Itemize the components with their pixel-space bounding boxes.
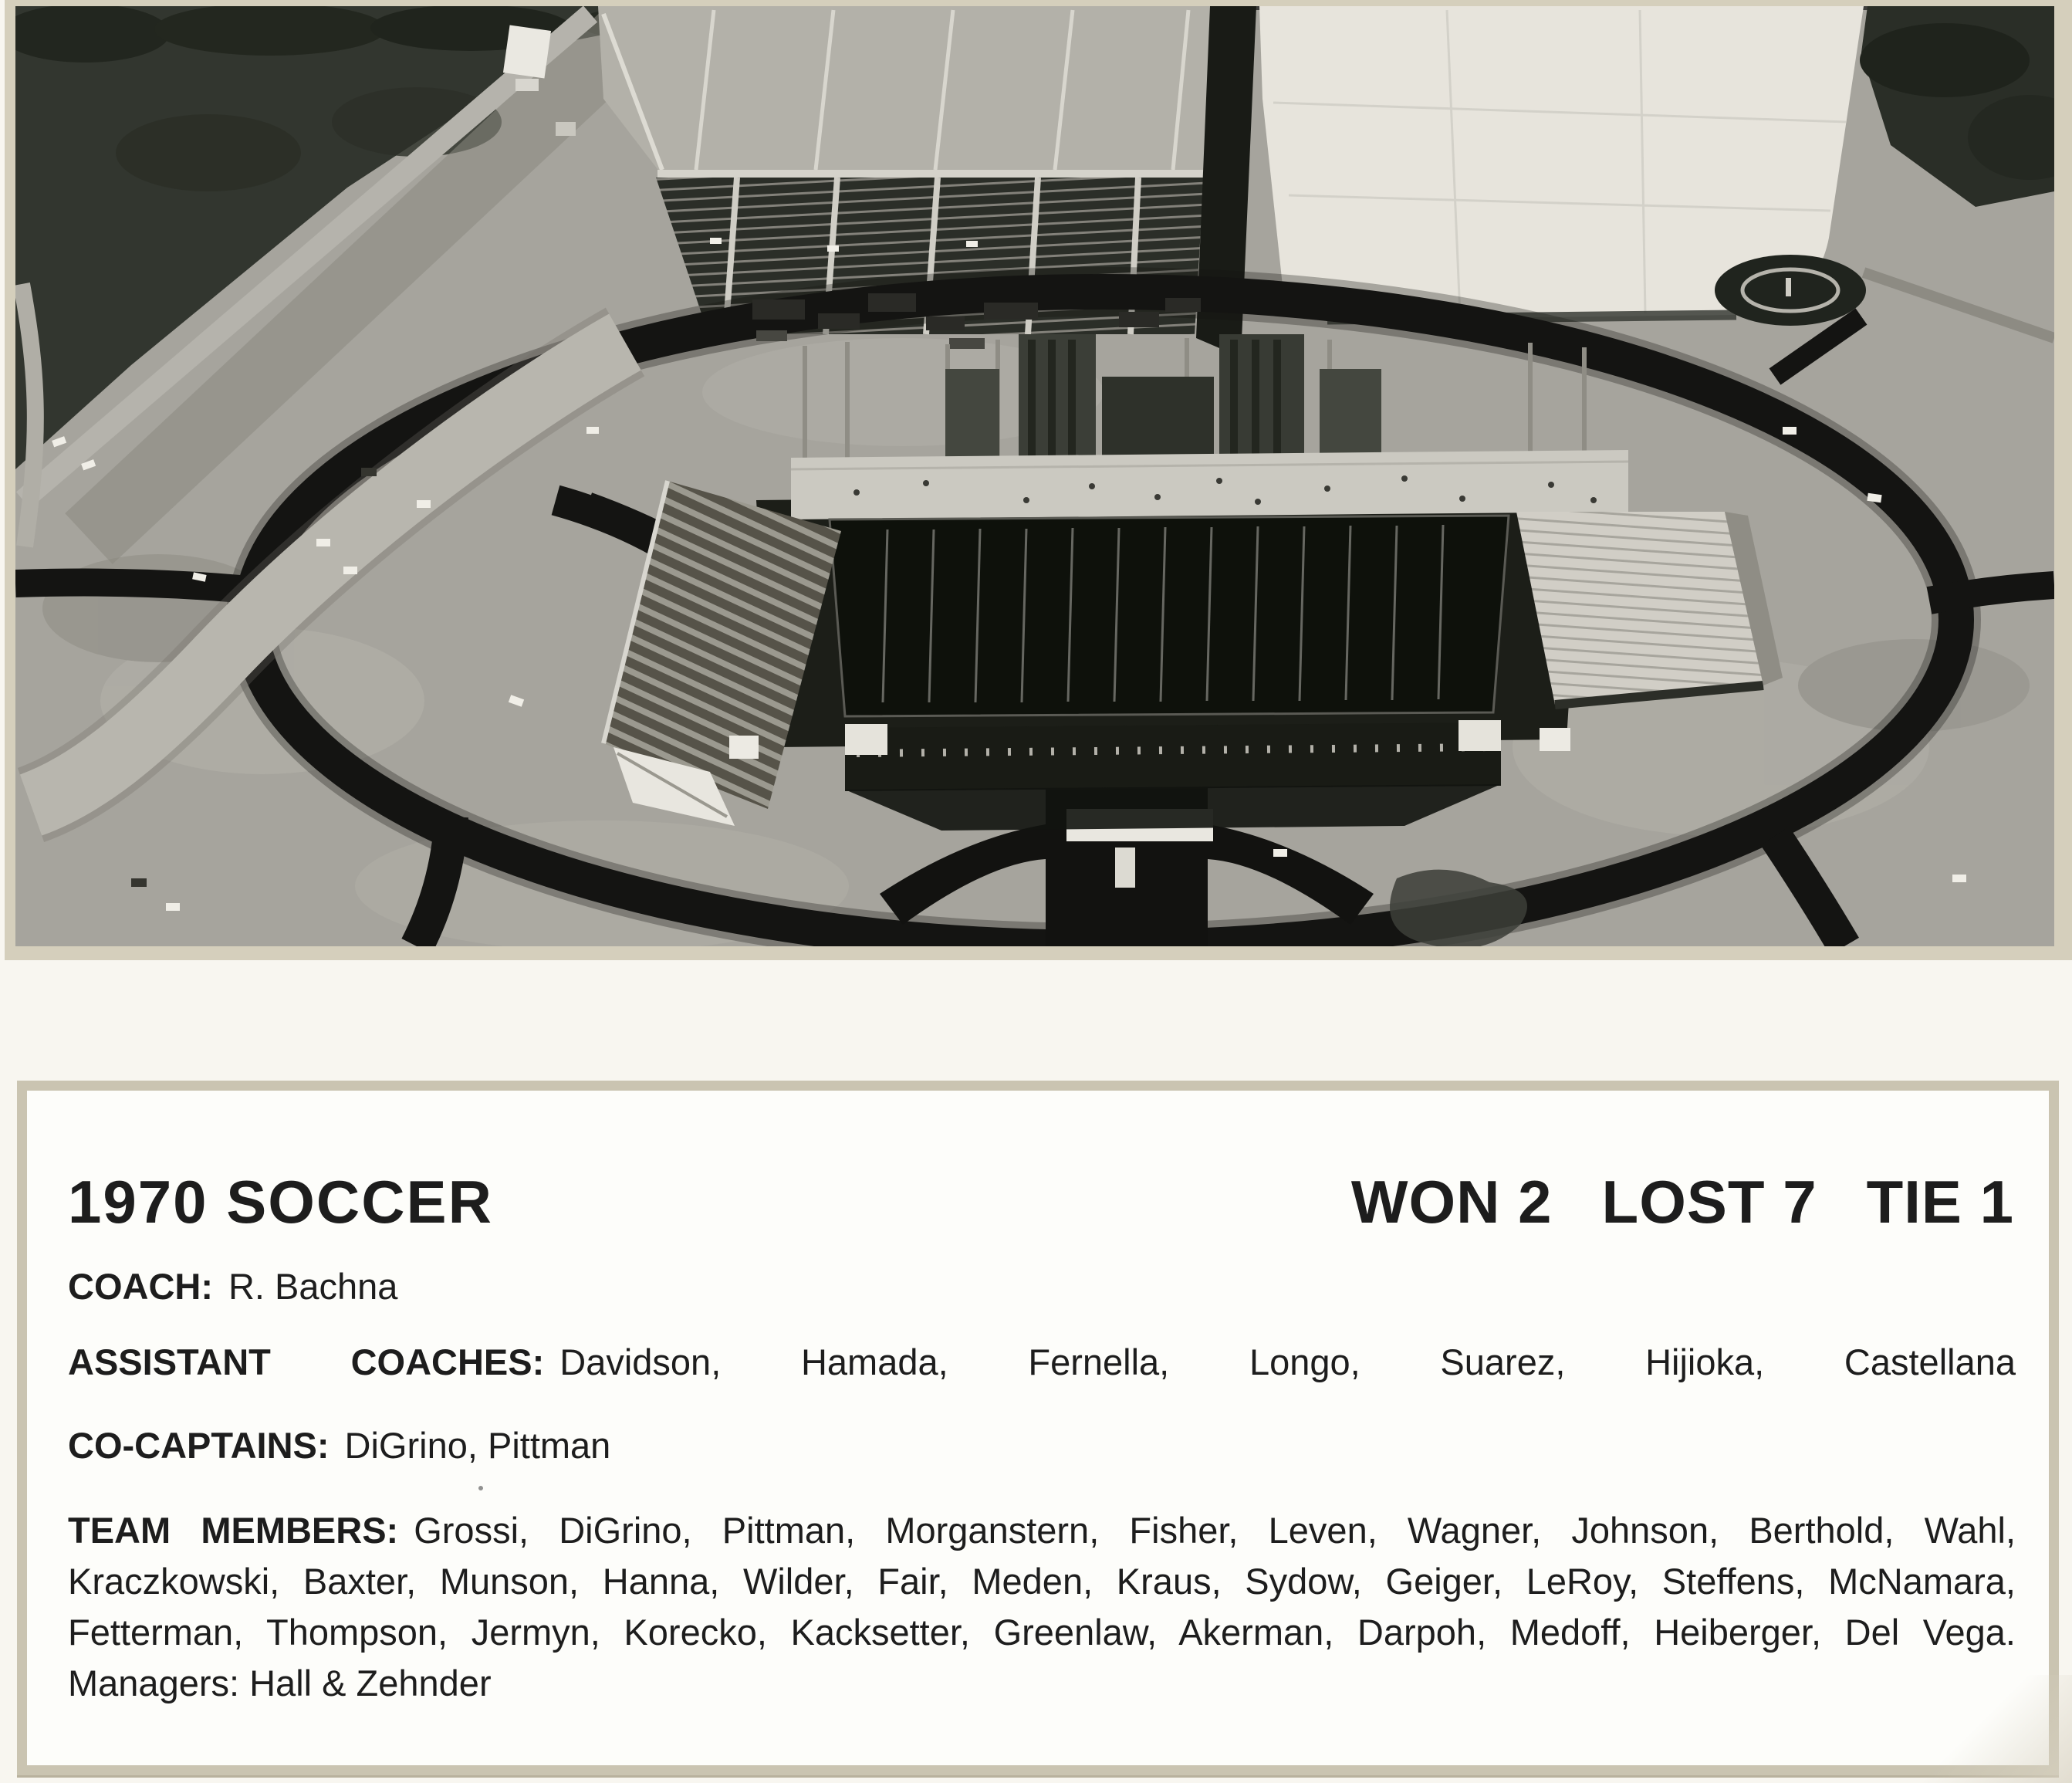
photo-mat — [5, 0, 2072, 960]
season-title: 1970 SOCCER — [68, 1167, 493, 1237]
record-lost: LOST 7 — [1602, 1167, 1817, 1237]
season-record: WON 2 LOST 7 TIE 1 — [1351, 1167, 2014, 1237]
assistant-coaches-label: ASSISTANT COACHES: — [68, 1341, 544, 1382]
ticket-booth-east — [1540, 728, 1570, 751]
east-grandstand — [1516, 512, 1783, 705]
scan-speck — [478, 1486, 483, 1490]
aerial-photo — [15, 6, 2054, 946]
team-members-label: TEAM MEMBERS: — [68, 1510, 398, 1551]
assistant-coaches-line: ASSISTANT COACHES:Davidson, Hamada, Fern… — [68, 1340, 2016, 1385]
parking-lot-upper — [598, 6, 1215, 172]
page-corner-shadow — [1840, 1675, 2072, 1783]
coach-label: COACH: — [68, 1266, 213, 1307]
record-tie: TIE 1 — [1867, 1167, 2014, 1237]
assistant-coaches-value: Davidson, Hamada, Fernella, Longo, Suare… — [559, 1341, 2016, 1382]
ticket-booth-west — [729, 736, 759, 759]
co-captains-label: CO-CAPTAINS: — [68, 1425, 330, 1466]
co-captains-line: CO-CAPTAINS:DiGrino, Pittman — [68, 1423, 610, 1468]
north-concourse — [791, 450, 1628, 519]
co-captains-value: DiGrino, Pittman — [345, 1425, 611, 1466]
coach-line: COACH:R. Bachna — [68, 1264, 397, 1309]
playing-field — [830, 516, 1509, 716]
coach-value: R. Bachna — [228, 1266, 397, 1307]
team-members-paragraph: TEAM MEMBERS:Grossi, DiGrino, Pittman, M… — [68, 1505, 2016, 1709]
record-won: WON 2 — [1351, 1167, 1553, 1237]
